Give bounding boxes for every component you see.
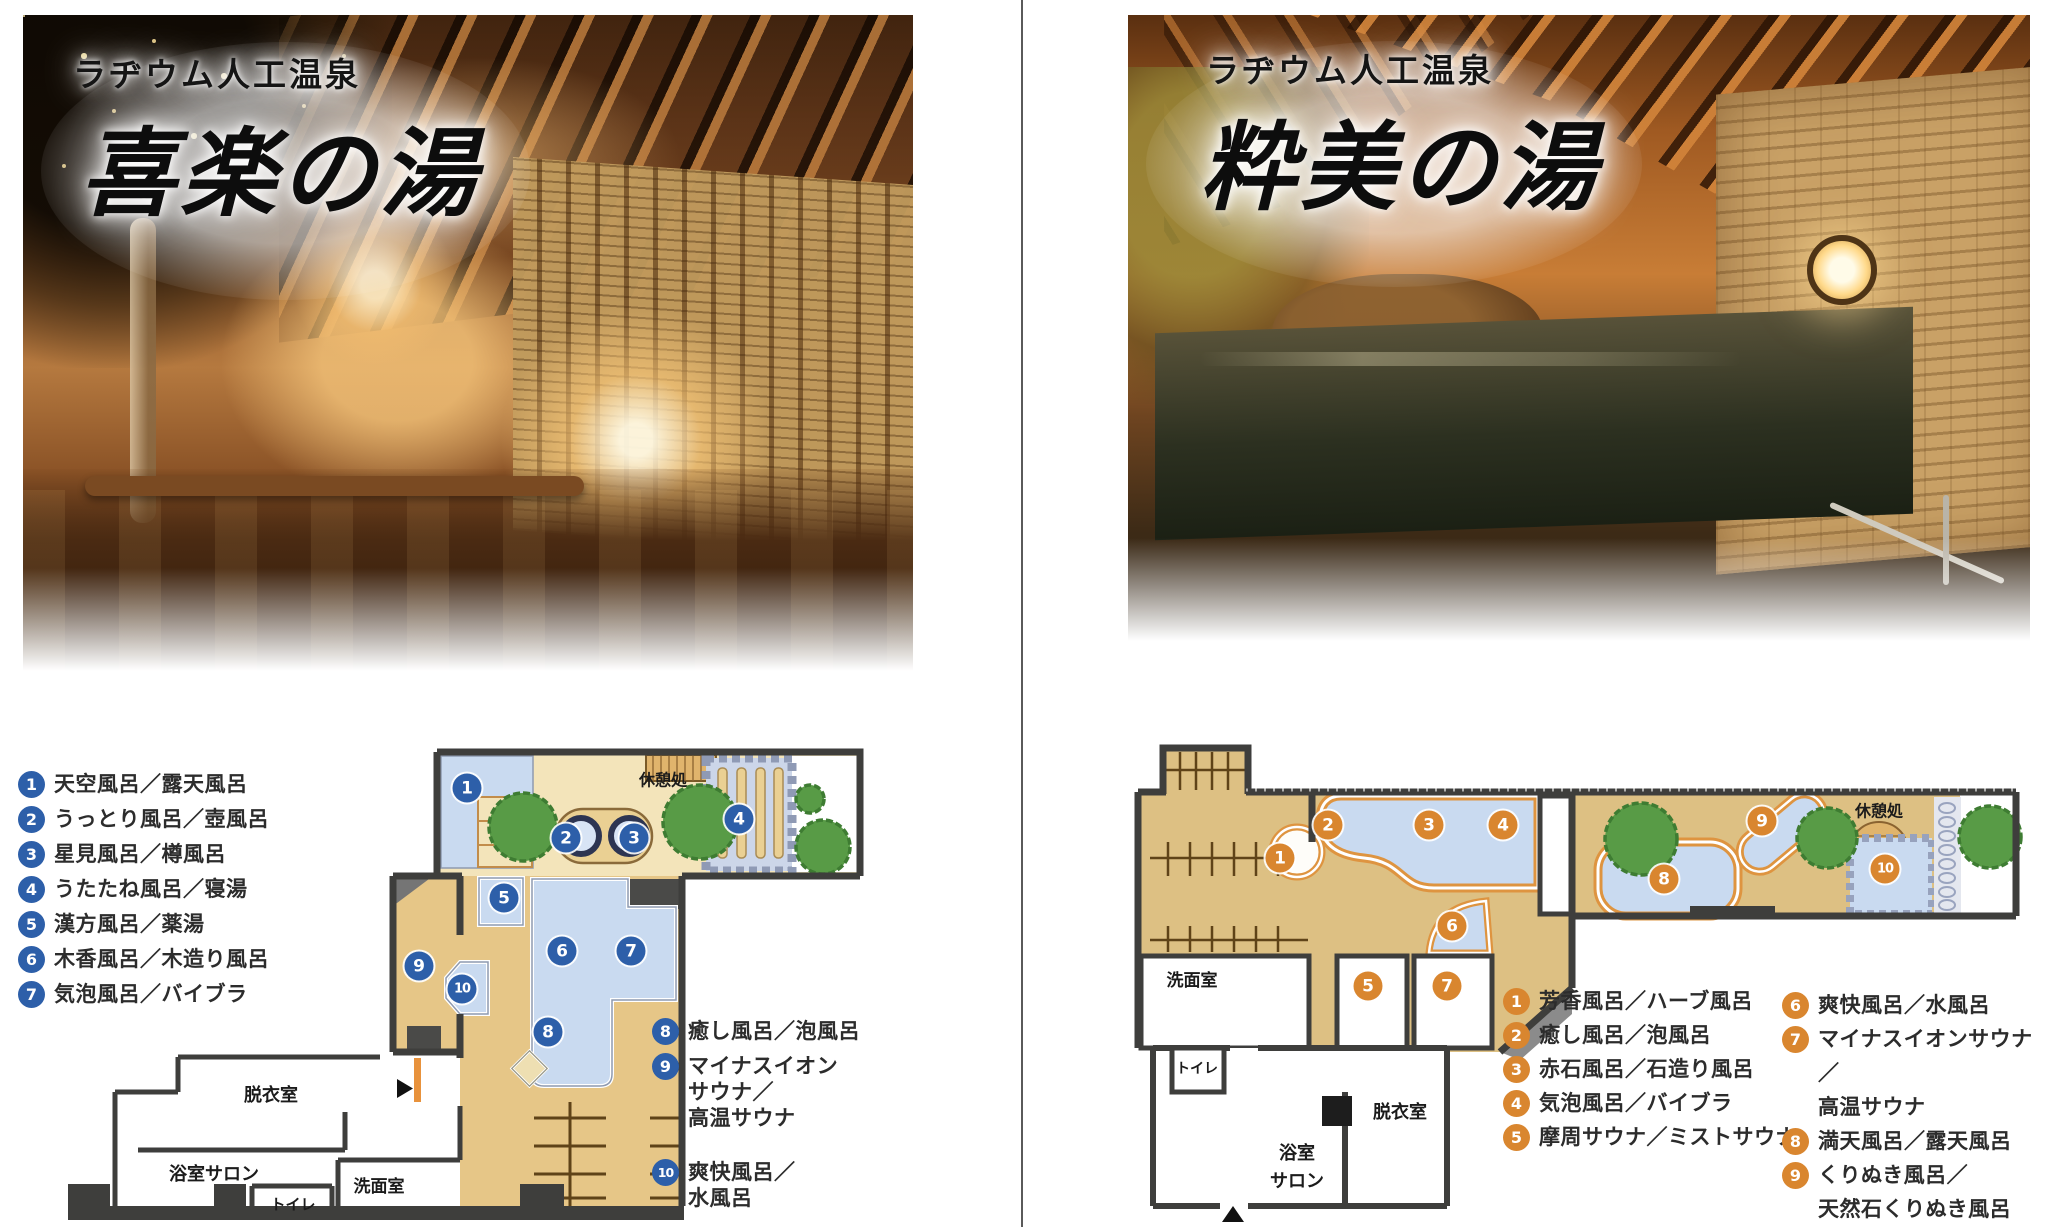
legend-item-7: 7マイナスイオンサウナ／高温サウナ — [1782, 1022, 2047, 1124]
legend-item-label: うっとり風呂／壺風呂 — [54, 806, 269, 833]
legend-item-9: 9マイナスイオンサウナ／高温サウナ — [652, 1053, 860, 1131]
legend-item-label: 摩周サウナ／ミストサウナ — [1539, 1124, 1797, 1151]
legend-item-2: 2癒し風呂／泡風呂 — [1503, 1022, 1797, 1049]
suibi-legend-column-1: 1芳香風呂／ハーブ風呂2癒し風呂／泡風呂3赤石風呂／石造り風呂4気泡風呂／バイブ… — [1503, 988, 1797, 1158]
legend-number-badge: 7 — [1782, 1026, 1809, 1053]
legend-item-6: 6爽快風呂／水風呂 — [1782, 988, 2047, 1022]
legend-number-badge: 8 — [652, 1018, 679, 1045]
legend-number-badge: 9 — [652, 1053, 679, 1080]
legend-item-8: 8満天風呂／露天風呂 — [1782, 1124, 2047, 1158]
legend-item-3: 3星見風呂／樽風呂 — [18, 841, 269, 868]
legend-number-badge: 2 — [1503, 1022, 1530, 1049]
legend-item-label: 木香風呂／木造り風呂 — [54, 946, 269, 973]
legend-item-label: 気泡風呂／バイブラ — [1539, 1090, 1733, 1117]
legend-item-label: 星見風呂／樽風呂 — [54, 841, 226, 868]
legend-item-label: 気泡風呂／バイブラ — [54, 981, 248, 1008]
legend-number-badge: 5 — [1503, 1124, 1530, 1151]
legend-item-label: 爽快風呂／水風呂 — [688, 1159, 796, 1211]
legend-item-label: 漢方風呂／薬湯 — [54, 911, 205, 938]
legend-item-5: 5漢方風呂／薬湯 — [18, 911, 269, 938]
legend-number-badge: 6 — [18, 946, 45, 973]
legend-number-badge: 10 — [652, 1159, 679, 1186]
legend-item-4: 4うたたね風呂／寝湯 — [18, 876, 269, 903]
legend-item-1: 1芳香風呂／ハーブ風呂 — [1503, 988, 1797, 1015]
legend-item-label: マイナスイオンサウナ／高温サウナ — [688, 1053, 838, 1131]
legend-number-badge: 9 — [1782, 1162, 1809, 1189]
legend-item-label: 爽快風呂／水風呂 — [1818, 988, 1990, 1022]
legend-number-badge: 4 — [18, 876, 45, 903]
legend-item-label: 癒し風呂／泡風呂 — [1539, 1022, 1711, 1049]
legend-item-label: くりぬき風呂／天然石くりぬき風呂 — [1818, 1158, 2011, 1226]
legend-item-label: マイナスイオンサウナ／高温サウナ — [1818, 1022, 2047, 1124]
kiraku-legend-column-2: 8癒し風呂／泡風呂9マイナスイオンサウナ／高温サウナ10爽快風呂／水風呂 — [652, 1018, 860, 1219]
onsen-brochure-page: ラヂウム人工温泉 喜楽の湯 ラヂウム人工温泉 粋美の湯 — [0, 0, 2047, 1227]
legend-item-5: 5摩周サウナ／ミストサウナ — [1503, 1124, 1797, 1151]
legend-number-badge: 5 — [18, 911, 45, 938]
legend-number-badge: 1 — [18, 771, 45, 798]
kiraku-legend-column-1: 1天空風呂／露天風呂2うっとり風呂／壺風呂3星見風呂／樽風呂4うたたね風呂／寝湯… — [18, 771, 269, 1016]
legend-number-badge: 3 — [18, 841, 45, 868]
legend-item-8: 8癒し風呂／泡風呂 — [652, 1018, 860, 1045]
legend-number-badge: 2 — [18, 806, 45, 833]
legend-number-badge: 3 — [1503, 1056, 1530, 1083]
suibi-legend-column-2: 6爽快風呂／水風呂7マイナスイオンサウナ／高温サウナ8満天風呂／露天風呂9くりぬ… — [1782, 988, 2047, 1227]
legend-number-badge: 6 — [1782, 992, 1809, 1019]
legend-item-3: 3赤石風呂／石造り風呂 — [1503, 1056, 1797, 1083]
legend-item-label: うたたね風呂／寝湯 — [54, 876, 248, 903]
legend-item-10: 10爽快風呂／水風呂 — [652, 1159, 860, 1211]
legend-item-label: 芳香風呂／ハーブ風呂 — [1539, 988, 1753, 1015]
legend-item-6: 6木香風呂／木造り風呂 — [18, 946, 269, 973]
legend-item-label: 癒し風呂／泡風呂 — [688, 1018, 860, 1044]
legend-number-badge: 4 — [1503, 1090, 1530, 1117]
legend-item-label: 赤石風呂／石造り風呂 — [1539, 1056, 1754, 1083]
legend-item-2: 2うっとり風呂／壺風呂 — [18, 806, 269, 833]
legend-item-9: 9くりぬき風呂／天然石くりぬき風呂 — [1782, 1158, 2047, 1226]
legend-item-label: 天空風呂／露天風呂 — [54, 771, 248, 798]
legend-item-7: 7気泡風呂／バイブラ — [18, 981, 269, 1008]
legend-item-label: 満天風呂／露天風呂 — [1818, 1124, 2012, 1158]
legend-number-badge: 7 — [18, 981, 45, 1008]
legend-number-badge: 1 — [1503, 988, 1530, 1015]
legend-item-4: 4気泡風呂／バイブラ — [1503, 1090, 1797, 1117]
legend-item-1: 1天空風呂／露天風呂 — [18, 771, 269, 798]
legend-number-badge: 8 — [1782, 1128, 1809, 1155]
